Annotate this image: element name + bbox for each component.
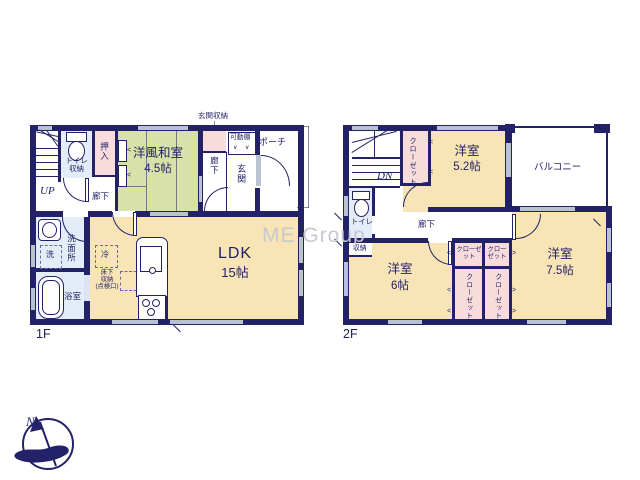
window	[520, 207, 575, 211]
porch-label: ポーチ	[259, 137, 286, 147]
entrance-label: 玄関	[236, 164, 246, 184]
stairs-2f	[352, 158, 400, 187]
sliding-door	[150, 212, 188, 216]
compass-north-label: N	[25, 414, 36, 429]
window	[170, 320, 243, 324]
sliding-opening	[199, 176, 202, 202]
window	[344, 196, 348, 216]
movable-shelf-label: 可動棚	[230, 134, 250, 142]
window	[527, 320, 566, 324]
wall	[84, 300, 90, 319]
wall	[452, 243, 455, 319]
window	[31, 245, 35, 267]
balcony-post	[594, 124, 610, 133]
wall	[255, 188, 260, 211]
room-75-label: 洋室 7.5帖	[520, 247, 600, 278]
balcony-label: バルコニー	[534, 163, 581, 174]
window	[299, 270, 303, 296]
balcony-rail	[606, 126, 608, 208]
room-75-door-leaf	[512, 214, 516, 240]
vent-mark	[173, 325, 181, 333]
stairs-winder-line	[352, 157, 400, 158]
balcony-sliding-door	[506, 143, 511, 177]
wall	[343, 319, 612, 325]
closet-br-label: クローゼット	[493, 273, 501, 320]
stairs-down-label: DN	[377, 170, 392, 182]
door-mark: <	[447, 308, 451, 315]
wall	[203, 151, 226, 153]
entrance-storage-label: 玄関収納	[198, 112, 228, 120]
closet-bl-label: クローゼット	[464, 273, 472, 320]
door-mark: <	[447, 287, 451, 294]
ldk-label: LDK 15帖	[195, 245, 275, 280]
compass-north-arrow: N	[12, 406, 86, 476]
underfloor-storage-label: 床下 収納 (点検口)	[92, 269, 122, 290]
closet-tr-label: クローゼット	[485, 246, 509, 260]
door-mark: <	[447, 250, 451, 257]
hallway-lower-label: 廊下	[92, 192, 109, 202]
window	[112, 320, 158, 324]
vanity-basin	[42, 222, 57, 238]
bathtub-inner	[42, 280, 60, 315]
burner	[152, 299, 160, 307]
door-mark: >	[512, 287, 516, 294]
floor2-label: 2F	[343, 327, 358, 341]
window	[138, 126, 188, 130]
porch-outline	[308, 126, 309, 208]
door-mark: >	[512, 308, 516, 315]
refrigerator-label: 冷	[101, 251, 109, 260]
bathroom-label: 浴室	[64, 292, 81, 302]
porch-outline	[297, 207, 309, 208]
wall	[400, 131, 403, 186]
window	[437, 126, 498, 130]
burner	[147, 308, 155, 316]
window	[607, 228, 611, 252]
window	[31, 288, 35, 310]
kitchen-faucet	[149, 267, 156, 274]
wall	[606, 206, 612, 325]
stairs-1f	[36, 148, 58, 183]
closet-tl-label: クローゼット	[456, 246, 482, 260]
window	[607, 283, 611, 307]
wall	[92, 131, 95, 177]
window	[352, 126, 378, 130]
wall	[88, 211, 112, 217]
wall	[36, 211, 63, 217]
floor1-label: 1F	[36, 327, 51, 341]
window	[344, 262, 348, 296]
oshiire-label: 押入	[99, 142, 109, 161]
wall	[349, 255, 372, 257]
hall-door-arc	[204, 187, 228, 211]
hallway-side-label: 廊下	[209, 156, 219, 175]
wall	[30, 319, 304, 325]
wall	[190, 211, 298, 217]
stairs-up-label: UP	[40, 185, 55, 197]
watermark: ME Group	[262, 224, 366, 248]
room-6-label: 洋室 6帖	[360, 262, 440, 293]
wall	[372, 188, 375, 216]
toilet-door-arc	[63, 178, 87, 202]
closet-2f-label: クローゼット	[409, 137, 417, 186]
bath-door	[84, 274, 90, 302]
front-door-arc	[261, 155, 290, 186]
entrance-storage-pointer	[214, 121, 215, 131]
shelf-mark: ∨	[233, 145, 237, 151]
door-mark: >	[512, 250, 516, 257]
toilet-door-leaf	[85, 178, 89, 202]
vent-mark	[334, 213, 342, 221]
wall	[452, 266, 512, 269]
room-52-label: 洋室 5.2帖	[431, 144, 503, 174]
stairs-winder-line	[46, 130, 58, 147]
washer-label: 洗	[46, 251, 54, 260]
ldk-door-leaf	[133, 212, 137, 236]
floor-plan-canvas: < < UP トイレ 収納 押入	[0, 0, 640, 480]
burner	[142, 299, 150, 307]
entrance-storage-shelf	[203, 131, 226, 151]
shelf-mark: ∨	[245, 145, 249, 151]
window	[388, 320, 422, 324]
japanese-room-label: 洋風和室 4.5帖	[118, 146, 198, 176]
wall	[428, 207, 512, 212]
toilet-bowl	[354, 199, 369, 217]
toilet-label: トイレ 収納	[61, 157, 92, 174]
hallway-2f-label: 廊下	[418, 220, 435, 230]
wall	[95, 175, 115, 177]
